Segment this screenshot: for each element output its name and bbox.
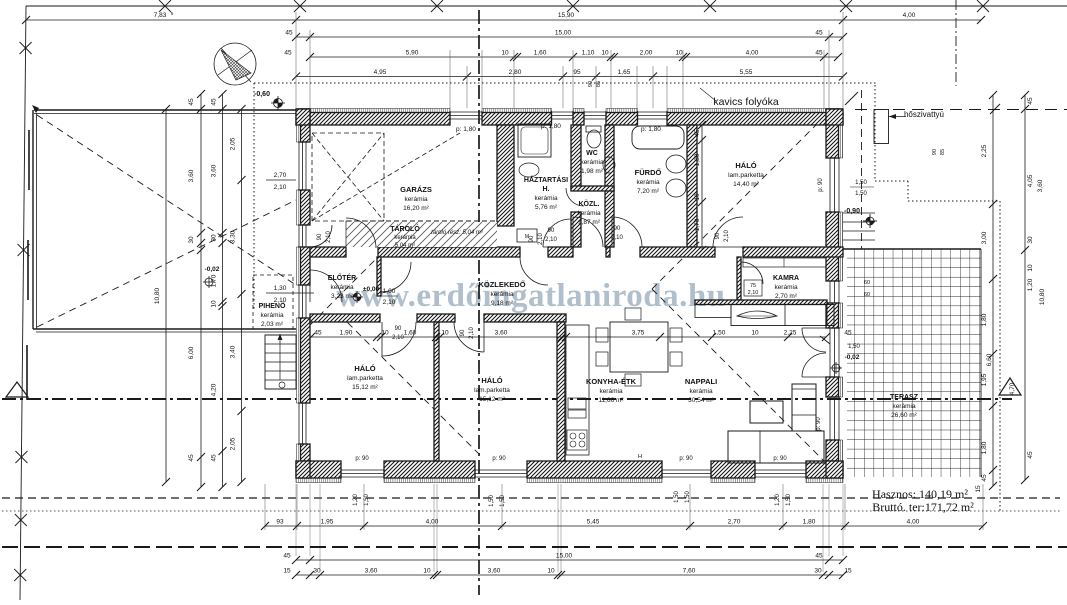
svg-text:7,20 m²: 7,20 m² xyxy=(637,188,660,195)
svg-text:NAPPALI: NAPPALI xyxy=(685,377,717,386)
svg-text:60: 60 xyxy=(864,292,870,298)
svg-text:1,50: 1,50 xyxy=(855,191,867,197)
svg-text:45: 45 xyxy=(314,330,322,337)
svg-text:15: 15 xyxy=(975,485,982,493)
svg-text:HÁLÓ: HÁLÓ xyxy=(354,364,375,373)
svg-text:45: 45 xyxy=(815,50,823,57)
svg-text:9,18 m²: 9,18 m² xyxy=(491,300,514,307)
svg-text:hőszivattyú: hőszivattyú xyxy=(904,110,944,119)
svg-text:KAMRA: KAMRA xyxy=(773,275,799,282)
svg-text:PIHENŐ: PIHENŐ xyxy=(259,301,286,310)
svg-text:kerámia: kerámia xyxy=(577,210,601,217)
svg-text:85: 85 xyxy=(940,149,946,155)
svg-text:1,95: 1,95 xyxy=(981,373,988,386)
svg-text:2,10: 2,10 xyxy=(469,327,475,339)
svg-text:tároló rész: 5,04 m²: tároló rész: 5,04 m² xyxy=(431,230,484,236)
svg-text:1,80: 1,80 xyxy=(694,153,701,166)
svg-text:p: 90: p: 90 xyxy=(818,178,824,192)
svg-text:kerámia: kerámia xyxy=(330,284,354,291)
svg-text:1,50: 1,50 xyxy=(364,494,370,506)
svg-text:95: 95 xyxy=(573,69,581,76)
svg-text:-0,90: -0,90 xyxy=(844,208,860,215)
svg-text:30: 30 xyxy=(814,568,822,575)
svg-text:1,90: 1,90 xyxy=(340,330,353,337)
svg-text:5,55: 5,55 xyxy=(740,69,753,76)
svg-text:WC: WC xyxy=(586,150,598,157)
svg-text:kerámia: kerámia xyxy=(534,195,558,202)
svg-text:-0,60: -0,60 xyxy=(254,91,270,98)
svg-text:kerámia: kerámia xyxy=(689,388,713,395)
svg-text:kerámia: kerámia xyxy=(636,179,660,186)
svg-text:10,80: 10,80 xyxy=(1039,288,1046,305)
svg-text:6,60: 6,60 xyxy=(986,353,993,366)
svg-text:p. 1,80: p. 1,80 xyxy=(541,123,561,130)
svg-text:10: 10 xyxy=(751,330,759,337)
svg-text:14,40 m²: 14,40 m² xyxy=(733,181,759,188)
svg-text:3,75: 3,75 xyxy=(632,330,645,337)
svg-text:30,54 m²: 30,54 m² xyxy=(688,397,714,404)
svg-text:2,10: 2,10 xyxy=(326,231,332,243)
svg-text:7,60: 7,60 xyxy=(683,568,696,575)
svg-text:kerámia: kerámia xyxy=(774,284,798,291)
svg-text:TERASZ: TERASZ xyxy=(890,394,919,401)
svg-text:2,03 m²: 2,03 m² xyxy=(261,321,284,328)
svg-text:KÖZL.: KÖZL. xyxy=(579,199,600,208)
svg-text:ELŐTÉR: ELŐTÉR xyxy=(328,273,356,282)
svg-text:7,83: 7,83 xyxy=(154,12,167,19)
svg-text:6,00: 6,00 xyxy=(188,346,195,359)
svg-text:45: 45 xyxy=(694,129,701,137)
svg-text:3,60: 3,60 xyxy=(211,164,218,177)
svg-text:45: 45 xyxy=(211,98,218,106)
svg-text:4,00: 4,00 xyxy=(907,519,920,526)
svg-text:3,60: 3,60 xyxy=(1037,179,1044,192)
svg-text:p: 90: p: 90 xyxy=(355,456,369,462)
svg-text:90: 90 xyxy=(317,233,323,240)
svg-text:3,60: 3,60 xyxy=(365,568,378,575)
svg-text:HÁZTARTÁSI: HÁZTARTÁSI xyxy=(524,175,568,184)
svg-text:10: 10 xyxy=(423,568,431,575)
svg-text:Bruttó. ter:171,72 m²: Bruttó. ter:171,72 m² xyxy=(872,500,974,514)
svg-text:45: 45 xyxy=(211,454,218,462)
svg-text:5,90: 5,90 xyxy=(406,50,419,57)
svg-text:2,10: 2,10 xyxy=(538,233,544,245)
svg-text:90: 90 xyxy=(529,235,535,242)
svg-text:10: 10 xyxy=(381,330,389,337)
svg-text:H: H xyxy=(638,454,642,460)
svg-text:kerámia: kerámia xyxy=(404,196,428,203)
svg-text:10: 10 xyxy=(211,300,218,308)
svg-text:1,65: 1,65 xyxy=(618,69,631,76)
svg-text:60: 60 xyxy=(864,280,870,286)
svg-text:15,12 m²: 15,12 m² xyxy=(479,396,505,403)
svg-text:90: 90 xyxy=(588,81,594,87)
svg-text:2,80: 2,80 xyxy=(509,69,522,76)
svg-text:kerámia: kerámia xyxy=(892,403,916,410)
svg-text:lam.parketta: lam.parketta xyxy=(474,387,510,394)
svg-text:93: 93 xyxy=(276,519,284,526)
svg-text:4,00: 4,00 xyxy=(746,50,759,57)
svg-text:1,80: 1,80 xyxy=(803,519,816,526)
svg-text:10: 10 xyxy=(601,50,609,57)
svg-text:1,80: 1,80 xyxy=(981,313,988,326)
svg-text:2,05: 2,05 xyxy=(230,437,237,450)
svg-text:2,00: 2,00 xyxy=(640,50,653,57)
svg-text:p: 90: p: 90 xyxy=(816,417,822,431)
svg-text:1,50: 1,50 xyxy=(786,494,792,506)
svg-text:1,50: 1,50 xyxy=(489,495,495,507)
svg-text:1,50: 1,50 xyxy=(713,330,726,337)
svg-text:kavics folyóka: kavics folyóka xyxy=(713,96,779,108)
svg-text:3,60: 3,60 xyxy=(188,169,195,182)
svg-text:2,05: 2,05 xyxy=(230,137,237,150)
svg-text:1,20: 1,20 xyxy=(1027,278,1034,291)
svg-text:1,30: 1,30 xyxy=(274,285,287,292)
svg-text:p: 90: p: 90 xyxy=(679,456,693,462)
svg-text:2,10: 2,10 xyxy=(611,235,623,241)
svg-text:45: 45 xyxy=(188,98,195,106)
svg-text:30: 30 xyxy=(1027,236,1034,244)
svg-text:4,20: 4,20 xyxy=(211,383,218,396)
svg-text:4,70: 4,70 xyxy=(1009,382,1016,395)
svg-text:2,25: 2,25 xyxy=(784,330,797,337)
svg-text:KONYHA-ÉTK: KONYHA-ÉTK xyxy=(586,377,637,386)
svg-text:45: 45 xyxy=(1027,451,1034,459)
svg-text:kerámia: kerámia xyxy=(394,235,416,241)
svg-text:2,25: 2,25 xyxy=(981,144,988,157)
svg-text:10: 10 xyxy=(694,193,701,201)
svg-text:3,00: 3,00 xyxy=(981,231,988,244)
svg-text:kerámia: kerámia xyxy=(260,312,284,319)
svg-text:1,50: 1,50 xyxy=(674,491,680,503)
svg-text:1,70: 1,70 xyxy=(694,218,701,231)
svg-text:85: 85 xyxy=(596,81,602,87)
svg-text:kerámia: kerámia xyxy=(580,159,604,166)
svg-text:1,20: 1,20 xyxy=(775,494,781,506)
svg-text:30: 30 xyxy=(313,568,321,575)
svg-text:±0,00: ±0,00 xyxy=(363,286,380,293)
svg-text:1,20: 1,20 xyxy=(353,494,359,506)
svg-text:1,10: 1,10 xyxy=(582,50,595,57)
svg-text:90: 90 xyxy=(460,329,466,336)
svg-text:10: 10 xyxy=(675,50,683,57)
svg-text:lam.parketta: lam.parketta xyxy=(728,172,764,179)
svg-text:45: 45 xyxy=(1027,97,1034,105)
svg-text:2,10: 2,10 xyxy=(392,335,404,341)
svg-text:2,70 m²: 2,70 m² xyxy=(775,293,798,300)
svg-text:4,05: 4,05 xyxy=(1027,174,1034,187)
svg-text:4,00: 4,00 xyxy=(903,12,916,19)
svg-text:10: 10 xyxy=(441,330,449,337)
svg-text:90: 90 xyxy=(932,149,938,155)
svg-text:26,60 m²: 26,60 m² xyxy=(891,412,917,419)
svg-text:3,23 m²: 3,23 m² xyxy=(331,293,354,300)
svg-text:p: 1,80: p: 1,80 xyxy=(641,126,661,133)
svg-text:45: 45 xyxy=(285,30,293,37)
svg-text:30: 30 xyxy=(188,236,195,244)
svg-text:10,80: 10,80 xyxy=(154,287,161,304)
svg-text:45: 45 xyxy=(188,454,195,462)
svg-text:16,20 m²: 16,20 m² xyxy=(403,205,429,212)
svg-text:1,00: 1,00 xyxy=(383,288,396,295)
svg-text:HÁLÓ: HÁLÓ xyxy=(481,376,502,385)
svg-text:11,66 m²: 11,66 m² xyxy=(598,397,624,404)
svg-text:HÁLÓ: HÁLÓ xyxy=(735,161,756,170)
svg-text:H.: H. xyxy=(543,186,550,193)
svg-text:90: 90 xyxy=(395,326,402,332)
svg-text:1,80: 1,80 xyxy=(981,441,988,454)
svg-text:15: 15 xyxy=(283,568,291,575)
svg-text:p: 90: p: 90 xyxy=(492,456,506,462)
svg-text:3,30: 3,30 xyxy=(230,230,237,243)
svg-text:10: 10 xyxy=(501,50,509,57)
svg-text:1,95: 1,95 xyxy=(321,519,334,526)
svg-text:5,04 m²: 5,04 m² xyxy=(395,243,415,249)
svg-text:15,12 m²: 15,12 m² xyxy=(352,384,378,391)
svg-text:3,60: 3,60 xyxy=(488,568,501,575)
svg-text:90: 90 xyxy=(614,226,621,232)
svg-text:1,60: 1,60 xyxy=(404,330,417,337)
svg-text:2,10: 2,10 xyxy=(724,230,730,242)
svg-text:p: 1,80: p: 1,80 xyxy=(456,126,476,133)
svg-text:3,60: 3,60 xyxy=(495,330,508,337)
svg-text:kerámia: kerámia xyxy=(490,291,514,298)
svg-text:75: 75 xyxy=(750,283,756,289)
svg-text:90: 90 xyxy=(715,232,721,239)
svg-text:1,98 m²: 1,98 m² xyxy=(581,168,604,175)
svg-text:45: 45 xyxy=(815,553,823,560)
svg-text:KÖZLEKEDŐ: KÖZLEKEDŐ xyxy=(478,280,525,289)
svg-text:kerámia: kerámia xyxy=(599,388,623,395)
svg-text:45: 45 xyxy=(815,30,823,37)
svg-text:15,00: 15,00 xyxy=(555,30,572,37)
svg-text:2,70: 2,70 xyxy=(728,519,741,526)
svg-text:1,50: 1,50 xyxy=(500,495,506,507)
svg-text:FÜRDŐ: FÜRDŐ xyxy=(635,168,662,177)
svg-text:3,40: 3,40 xyxy=(230,345,237,358)
svg-text:5,45: 5,45 xyxy=(587,519,600,526)
svg-text:10: 10 xyxy=(1027,264,1034,272)
svg-text:1,87 m²: 1,87 m² xyxy=(578,219,601,226)
svg-text:2,10: 2,10 xyxy=(545,237,557,243)
svg-text:45: 45 xyxy=(844,330,852,337)
svg-text:-0,02: -0,02 xyxy=(845,354,860,361)
svg-text:lam.parketta: lam.parketta xyxy=(347,375,383,382)
svg-text:1,50: 1,50 xyxy=(855,180,867,186)
svg-text:2,10: 2,10 xyxy=(748,290,759,296)
svg-text:5,76 m²: 5,76 m² xyxy=(535,204,558,211)
svg-text:15,90: 15,90 xyxy=(558,12,575,19)
svg-text:1,50: 1,50 xyxy=(848,344,860,350)
svg-text:-0,02: -0,02 xyxy=(205,266,220,273)
svg-text:90: 90 xyxy=(548,228,555,234)
svg-text:p: 90: p: 90 xyxy=(773,456,787,462)
svg-text:45: 45 xyxy=(284,50,292,57)
svg-text:45: 45 xyxy=(981,474,988,482)
svg-text:Hasznos: 140,19 m²: Hasznos: 140,19 m² xyxy=(872,487,968,501)
svg-text:2,10: 2,10 xyxy=(274,184,287,191)
svg-text:GARÁZS: GARÁZS xyxy=(400,185,432,194)
svg-text:10: 10 xyxy=(547,568,555,575)
svg-text:TÁROLÓ: TÁROLÓ xyxy=(390,224,420,233)
svg-text:15,00: 15,00 xyxy=(556,553,573,560)
svg-text:30: 30 xyxy=(211,234,218,242)
svg-text:1,60: 1,60 xyxy=(534,50,547,57)
svg-text:4,95: 4,95 xyxy=(374,69,387,76)
svg-text:2,70: 2,70 xyxy=(274,172,287,179)
svg-text:2,10: 2,10 xyxy=(383,299,396,306)
svg-text:15: 15 xyxy=(844,568,852,575)
svg-text:45: 45 xyxy=(283,553,291,560)
svg-text:4,00: 4,00 xyxy=(426,519,439,526)
